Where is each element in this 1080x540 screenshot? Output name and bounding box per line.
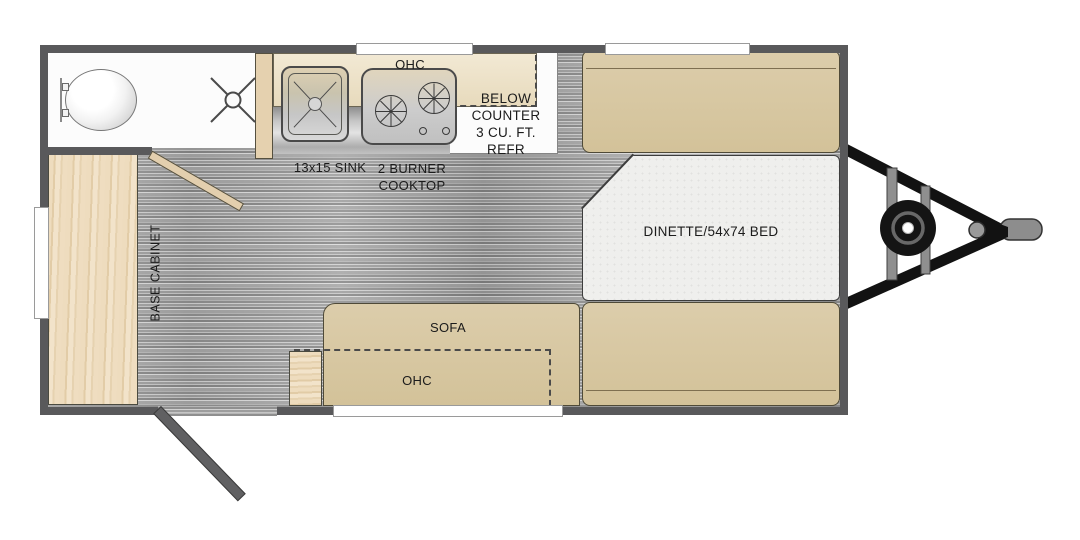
window [333,405,563,417]
label-cooktop: 2 BURNER COOKTOP [362,160,462,194]
hitch-pivot [969,222,985,238]
label-line: COUNTER [460,107,552,124]
label-sofa-ohc: OHC [387,373,447,388]
label-line: 3 CU. FT. [460,124,552,141]
label-kitchen-ohc: OHC [380,57,440,72]
label-dinette-bed: DINETTE/54x74 BED [601,224,821,239]
label-sofa: SOFA [408,320,488,335]
trailer-floorplan: OHC BELOW COUNTER 3 CU. FT. REFR 13x15 S… [0,0,1080,540]
jack-wheel-hub [903,223,914,234]
entry-door-opening [158,406,277,416]
entry-door [153,406,246,501]
label-below-counter-refr: BELOW COUNTER 3 CU. FT. REFR [460,90,552,158]
label-line: BELOW [460,90,552,107]
label-base-cabinet: BASE CABINET [149,216,163,331]
label-line: REFR [460,141,552,158]
label-line: 2 BURNER [362,160,462,177]
window [605,43,750,55]
window [356,43,473,55]
trailer-hitch [830,120,1070,340]
window [34,207,49,319]
label-line: COOKTOP [362,177,462,194]
